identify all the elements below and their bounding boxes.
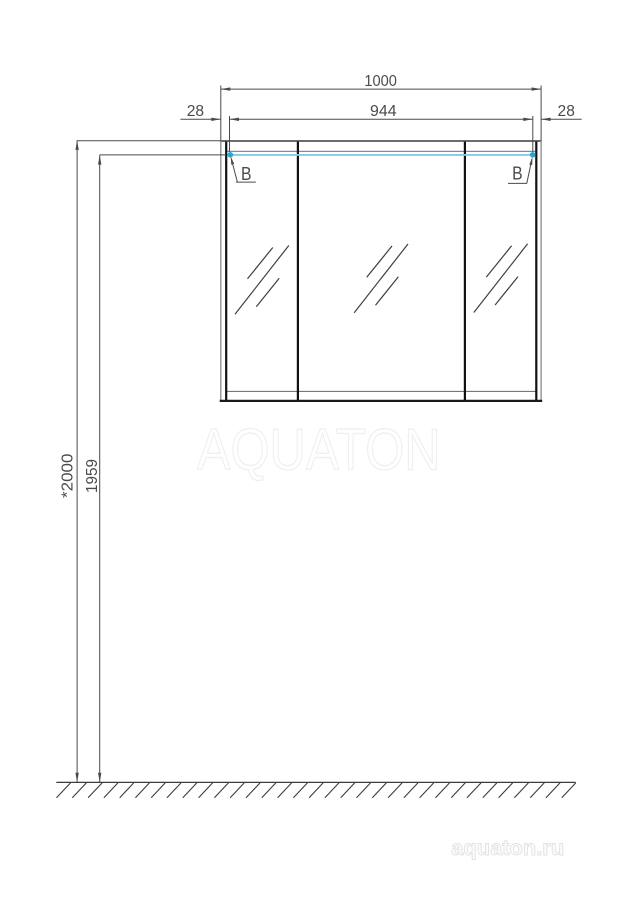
svg-text:*2000: *2000 xyxy=(60,453,77,498)
svg-text:AQUATON: AQUATON xyxy=(197,418,441,483)
svg-text:28: 28 xyxy=(187,103,204,120)
svg-text:aquaton.ru: aquaton.ru xyxy=(451,837,564,860)
svg-text:B: B xyxy=(241,164,252,184)
svg-text:28: 28 xyxy=(558,103,575,120)
svg-text:1959: 1959 xyxy=(84,459,101,493)
svg-text:944: 944 xyxy=(370,103,397,120)
svg-text:1000: 1000 xyxy=(364,73,397,90)
svg-text:B: B xyxy=(512,163,523,183)
